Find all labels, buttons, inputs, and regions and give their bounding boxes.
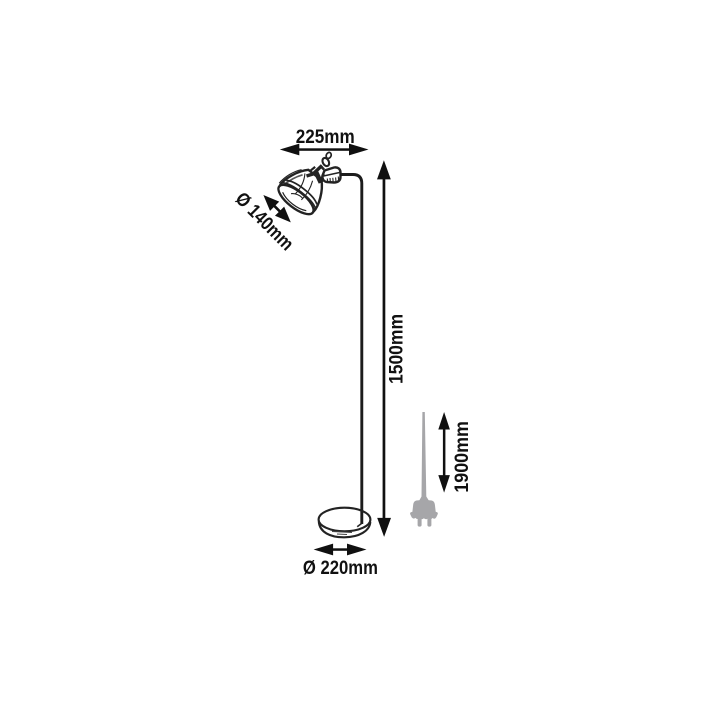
svg-text:225mm: 225mm <box>296 127 355 148</box>
svg-text:1500mm: 1500mm <box>387 314 408 384</box>
svg-text:1900mm: 1900mm <box>452 421 473 493</box>
svg-text:Ø 220mm: Ø 220mm <box>303 558 378 579</box>
